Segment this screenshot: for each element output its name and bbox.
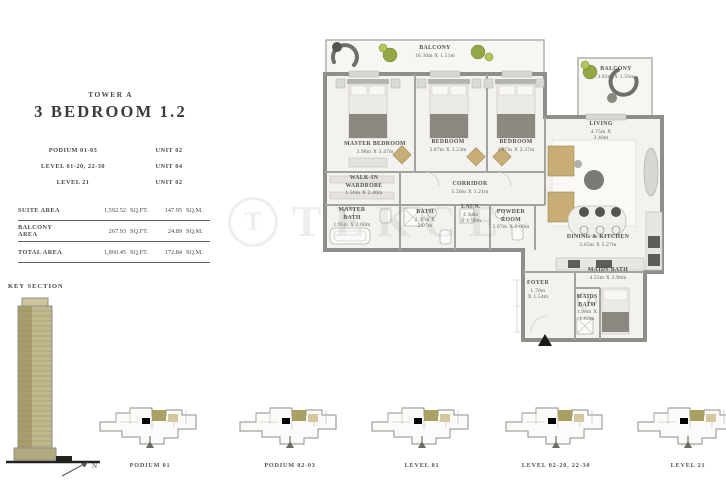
room-label-balcony-right: BALCONY3.82m X 1.56m [597,66,634,80]
room-label-powder-room: POWDERROOM2.07m X 2.00m [492,209,529,231]
room-label-line: 4.75m X [589,129,612,136]
room-label-line: 3.98m X 3.47m [344,149,406,156]
keyplan-label: LEVEL 01 [362,462,482,469]
room-label-line: BEDROOM [497,139,534,147]
room-label-line: 10.30m X 1.51m [415,53,455,60]
room-label-line: BATH [333,215,370,223]
room-label-master-bath: MASTERBATH1.95m X 2.60m [333,207,370,229]
room-label-line: LAUN. [461,204,482,212]
balcony-door [586,114,626,120]
room-label-line: 3.65m X 5.27m [567,242,629,249]
highlighted-balcony [168,414,178,422]
room-label-line: 2.37m X [415,217,436,224]
keyplan-label: LEVEL 21 [628,462,726,469]
keyplan-thumbnail: LEVEL 01 [362,396,482,463]
room-label-line: LIVING [589,121,612,129]
room-label-line: 1.44m [461,212,482,219]
room-label-walk-in-wardrobe: WALK-INWARDROBE1.56m X 2.40m [345,175,382,197]
room-label-foyer: FOYER1.70mX 1.54m [527,280,549,301]
room-label-line: 1.98m X [576,309,597,316]
room-label-maids-bath-upper: MAIDS BATH4.55m X 2.96m [588,267,628,281]
keyplan-thumbnail: LEVEL 21 [628,396,726,463]
balcony-door [430,71,460,77]
room-label-line: 3.87m X 3.37m [497,147,534,154]
keyplan-drawing [362,396,482,458]
room-label-line: 1.70m [527,288,549,295]
room-label-line: 3.82m X 1.56m [597,74,634,81]
room-label-line: CORRIDOR [451,181,488,189]
balcony-door [502,71,532,77]
dimension-line [514,280,520,332]
highlighted-balcony [308,414,318,422]
room-label-line: WARDROBE [345,183,382,191]
room-label-line: BATH [576,302,597,310]
highlighted-unit [292,410,306,421]
room-label-bedroom-2: BEDROOM3.87m X 3.23m [429,139,466,153]
room-label-line: POWDER [492,209,529,217]
room-label-maids-bath: MAIDSBATH1.98m X1.63m [576,294,597,323]
keyplan-drawing [90,396,210,458]
room-label-line: 1.56m X 2.40m [345,190,382,197]
room-label-line: MAIDS [576,294,597,302]
room-label-master-bedroom: MASTER BEDROOM3.98m X 3.47m [344,141,406,155]
room-label-line: MASTER BEDROOM [344,141,406,149]
room-label-line: BEDROOM [429,139,466,147]
room-label-line: X 1.90m [461,218,482,225]
floorplan-sheet: TOWER A 3 BEDROOM 1.2 PODIUM 01-03UNIT 0… [0,0,726,485]
keyplan-drawing [628,396,726,458]
room-label-bedroom-3: BEDROOM3.87m X 3.37m [497,139,534,153]
room-label-line: 4.55m X 2.96m [588,275,628,282]
keyplan-thumbnail: PODIUM 01 [90,396,210,463]
highlighted-balcony [574,414,584,422]
room-label-living: LIVING4.75m X3.40m [589,121,612,142]
room-label-line: 5.30m X 1.21m [451,189,488,196]
room-label-line: BATH [415,209,436,217]
room-label-line: X 1.54m [527,294,549,301]
keyplan-thumbnail: PODIUM 02-03 [230,396,350,463]
highlighted-unit [424,410,438,421]
highlighted-unit [690,410,704,421]
highlighted-unit [152,410,166,421]
room-label-line: 3.40m [589,135,612,142]
room-label-line: BALCONY [597,66,634,74]
keyplan-label: PODIUM 02-03 [230,462,350,469]
room-label-laundry: LAUN.1.44mX 1.90m [461,204,482,225]
room-label-line: FOYER [527,280,549,288]
room-label-line: 2.07m X 2.00m [492,224,529,231]
keyplan-drawing [496,396,616,458]
keyplan-label: LEVEL 02-20, 22-30 [496,462,616,469]
room-label-line: 3.87m X 3.23m [429,147,466,154]
highlighted-unit [558,410,572,421]
room-label-line: DINING & KITCHEN [567,234,629,242]
balcony-door [349,71,379,77]
room-label-line: MASTER [333,207,370,215]
room-label-line: BALCONY [415,45,455,53]
room-label-line: ROOM [492,217,529,225]
keyplan-label: PODIUM 01 [90,462,210,469]
room-label-line: 1.63m [576,316,597,323]
maids-room-furniture [602,288,629,334]
room-label-corridor: CORRIDOR5.30m X 1.21m [451,181,488,195]
keyplan-thumbnail: LEVEL 02-20, 22-30 [496,396,616,463]
highlighted-balcony [440,414,450,422]
room-label-line: WALK-IN [345,175,382,183]
room-label-line: 2.07m [415,223,436,230]
highlighted-balcony [706,414,716,422]
keyplan-drawing [230,396,350,458]
room-label-line: 1.95m X 2.60m [333,222,370,229]
room-label-line: MAIDS BATH [588,267,628,275]
room-label-balcony-top: BALCONY10.30m X 1.51m [415,45,455,59]
room-label-bath: BATH2.37m X2.07m [415,209,436,230]
room-label-dining-kitchen: DINING & KITCHEN3.65m X 5.27m [567,234,629,248]
